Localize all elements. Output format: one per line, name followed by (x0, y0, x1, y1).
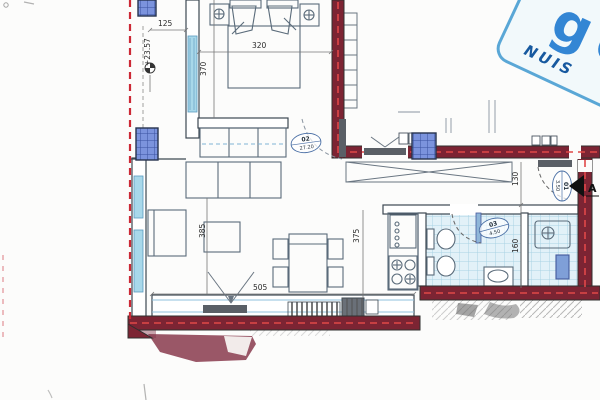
chair (273, 267, 288, 287)
kitchen-counter (388, 213, 418, 290)
dim-hall-depth: 130 (511, 171, 520, 186)
section-label: A (588, 182, 597, 195)
wc-door-opening (450, 204, 478, 215)
chair (328, 267, 343, 287)
dim-living-length: 505 (253, 283, 268, 292)
scan-bleed-smudges (3, 2, 582, 400)
living-window-1 (134, 176, 143, 218)
chair (328, 239, 343, 259)
room-label-hall: 01 3.50 (553, 171, 572, 201)
floorplan-scan: 125 320 370 385 375 505 130 160 +23.57 0… (0, 0, 600, 400)
column-entry (412, 133, 436, 159)
bidet-bowl (437, 256, 455, 276)
bathroom-west-wall (418, 213, 426, 286)
living-room-number: 02 (301, 135, 310, 143)
hall-room-number: 01 (562, 182, 569, 190)
terrace-level-text: +23.57 (143, 38, 152, 66)
neighbor-unit-lines (398, 100, 495, 133)
bed (228, 26, 300, 88)
side-table (204, 222, 240, 252)
entry-door-leaf (364, 148, 406, 155)
chair (273, 239, 288, 259)
bedroom-door-leaf (339, 119, 346, 157)
toilet-bowl (437, 229, 455, 249)
room-label-living: 02 27.20 (290, 132, 322, 155)
dim-bath-depth: 160 (511, 238, 520, 253)
pillow-right (268, 6, 292, 34)
bedroom-window (188, 36, 197, 112)
living-window-2 (134, 230, 143, 292)
floorplan-drawing: 125 320 370 385 375 505 130 160 +23.57 0… (0, 0, 600, 400)
sofa-sectional (186, 162, 281, 198)
dining-table (289, 234, 327, 292)
level-marker: +23.57 (143, 38, 155, 73)
hall-door-leaf (538, 160, 572, 167)
bedroom-partition-wall (198, 118, 288, 128)
column-balcony (138, 0, 156, 16)
bathroom-divider-wall (521, 213, 528, 286)
hall-room-area: 3.50 (554, 180, 560, 191)
dim-bedroom-depth: 370 (199, 61, 208, 76)
living-south-window (152, 272, 414, 318)
column-west (136, 128, 158, 160)
living-furniture (148, 128, 343, 292)
dim-living-width: 385 (198, 223, 207, 238)
sliding-door-leaf (203, 305, 247, 313)
section-marker: A (569, 175, 599, 197)
dim-kitchen-depth: 375 (352, 228, 361, 243)
dim-balcony-width: 125 (158, 19, 173, 28)
kitchen-sink (390, 215, 416, 248)
bidet-tank (427, 257, 434, 275)
water-heater (556, 255, 569, 279)
section-arrow-icon (569, 175, 584, 197)
sofa-long (200, 128, 286, 157)
dim-bed-width: 320 (252, 41, 267, 50)
top-right-closet (344, 13, 357, 108)
toilet-tank (427, 229, 434, 249)
hall-wardrobe (346, 162, 512, 182)
